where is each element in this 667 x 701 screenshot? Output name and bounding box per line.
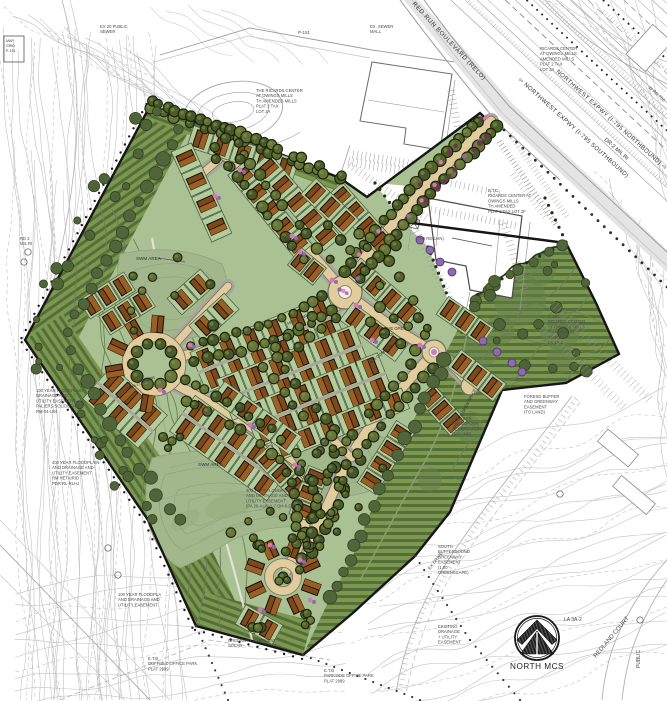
svg-text:PLAT 2999: PLAT 2999 [148,666,169,671]
svg-text:PLAT 2 TAX LOT 2F: PLAT 2 TAX LOT 2F [488,209,526,214]
svg-text:RM-04-U04: RM-04-U04 [36,409,58,414]
svg-text:UTILITY EASEMENT: UTILITY EASEMENT [118,602,158,607]
svg-text:LOT 2A: LOT 2A [256,109,271,114]
svg-text:GRID: GRID [6,44,15,48]
svg-text:(TO LAND): (TO LAND) [524,410,545,415]
svg-text:LOT 2A: LOT 2A [540,67,555,72]
svg-text:PUBLIC: PUBLIC [636,650,642,668]
svg-text:SWM AREA: SWM AREA [198,462,224,467]
svg-text:SEWER: SEWER [100,29,115,34]
svg-text:MAP: MAP [6,39,14,43]
svg-text:P-151: P-151 [298,30,311,35]
svg-text:SOLAD: SOLAD [228,643,242,648]
svg-text:P-151: P-151 [6,49,16,53]
svg-text:EASEMENT: EASEMENT [438,640,461,645]
svg-text:GREENSCAPE): GREENSCAPE) [438,570,469,575]
svg-text:ACTIVE OPEN: ACTIVE OPEN [378,326,406,331]
svg-text:(TYLAND): (TYLAND) [452,432,472,437]
svg-text:(PA 20-AUN-1-7-DH-0-DU): (PA 20-AUN-1-7-DH-0-DU) [246,504,297,509]
svg-text:MALL: MALL [370,29,382,34]
svg-text:MIL RI: MIL RI [20,241,32,246]
svg-text:PDR RL-RU-U: PDR RL-RU-U [52,481,79,486]
svg-text:(TO REGAIN): (TO REGAIN) [418,236,444,241]
svg-text:SWM AREA: SWM AREA [136,256,162,261]
svg-text:LA 3A-2: LA 3A-2 [564,617,582,623]
svg-text:PLAT 2999: PLAT 2999 [324,678,345,683]
svg-text:SPACE: SPACE [380,332,394,337]
svg-text:NORTH MCS: NORTH MCS [510,662,564,671]
